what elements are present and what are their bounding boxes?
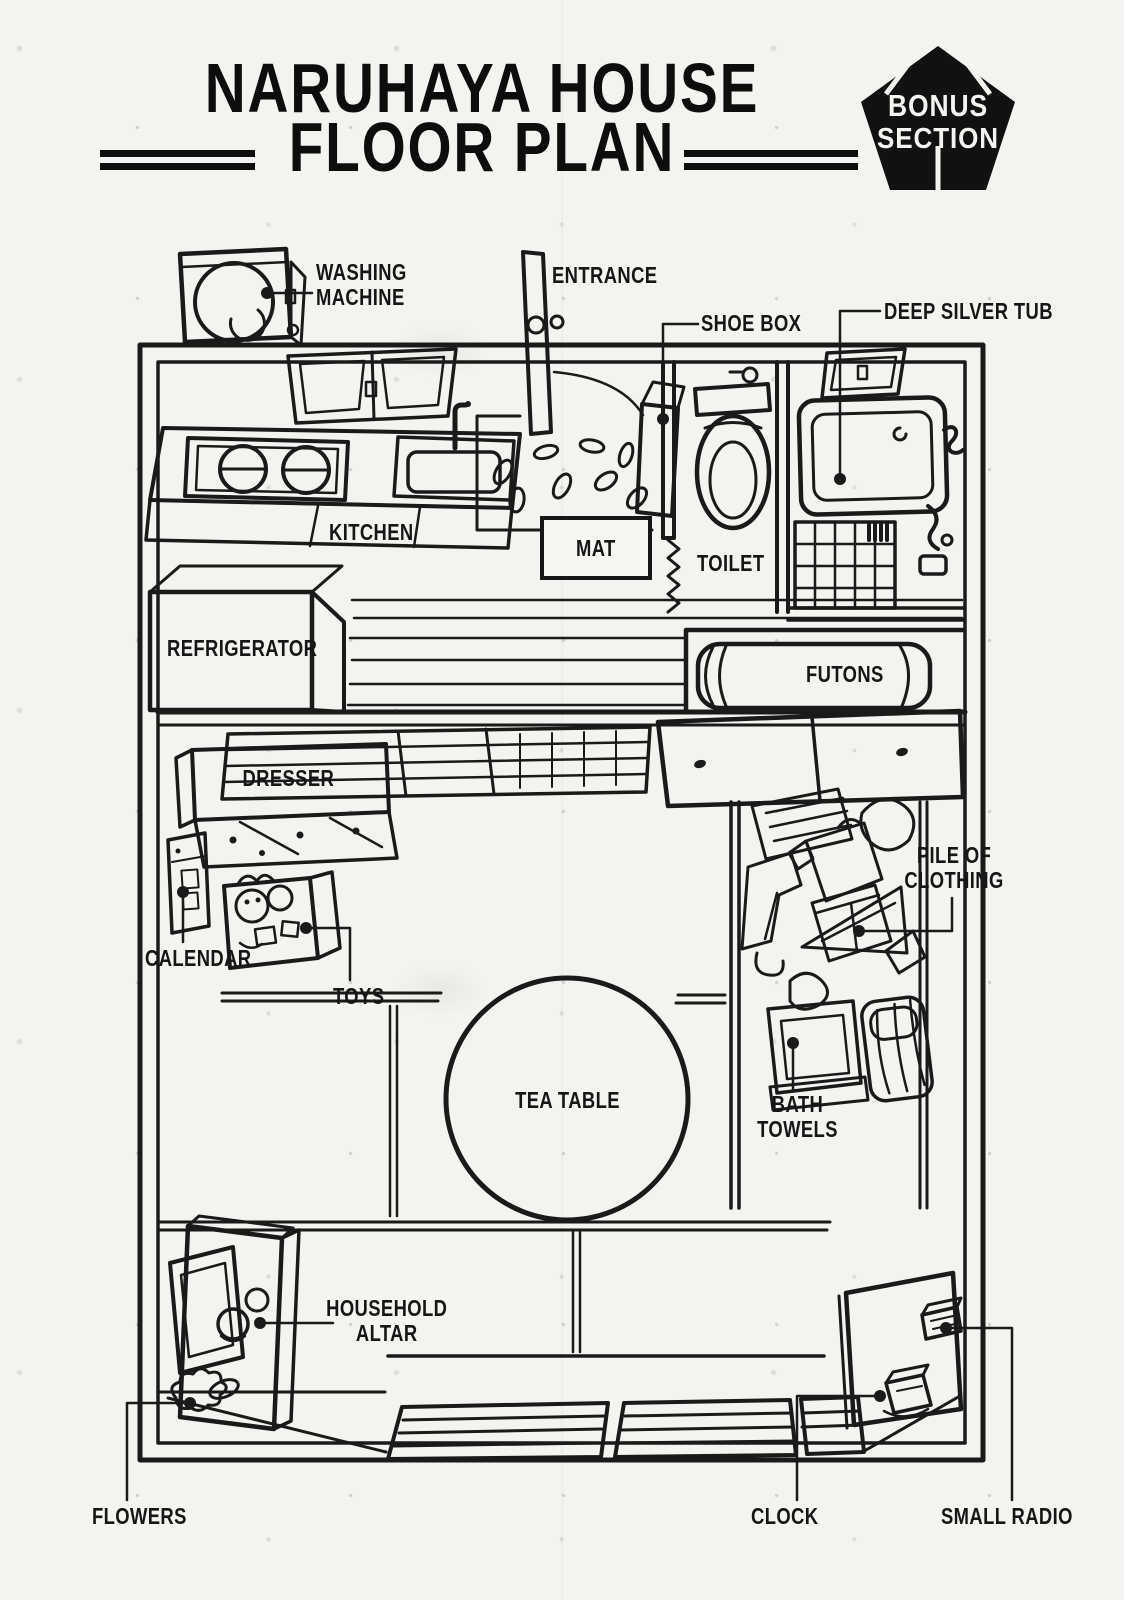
label-shoe-box: SHOE BOX (701, 311, 826, 336)
toilet-drawing (695, 368, 770, 528)
shower-fixture (920, 506, 952, 574)
kitchen-window (288, 349, 456, 423)
label-toilet: TOILET (697, 551, 781, 576)
page: NARUHAYA HOUSE FLOOR PLAN BONUS SECTION (0, 0, 1124, 1600)
label-calendar: CALENDAR (145, 946, 278, 971)
label-washing-machine: WASHING MACHINE (316, 260, 429, 310)
corridor-floor (348, 600, 962, 705)
label-kitchen: KITCHEN (329, 520, 435, 545)
label-bath-towels: BATH TOWELS (717, 1092, 877, 1142)
label-dresser: DRESSER (190, 766, 386, 791)
tatami-seams (160, 993, 960, 1452)
label-tea-table: TEA TABLE (467, 1088, 667, 1113)
floor-plan-drawing (0, 0, 1124, 1600)
bathroom-window (822, 349, 905, 398)
label-pile-of-clothing: PILE OF CLOTHING (874, 843, 1034, 893)
bath-floor-tiles (795, 522, 895, 608)
label-flowers: FLOWERS (92, 1504, 211, 1529)
clothing-pile-drawing (742, 789, 925, 1009)
towel-basket (860, 996, 934, 1103)
label-household-altar: HOUSEHOLD ALTAR (307, 1296, 467, 1346)
label-clock: CLOCK (751, 1504, 835, 1529)
calendar-drawing (168, 833, 209, 933)
washing-machine-drawing (180, 249, 305, 345)
clock-drawing (884, 1365, 931, 1417)
label-futons: FUTONS (806, 662, 903, 687)
label-deep-silver-tub: DEEP SILVER TUB (884, 299, 1095, 324)
shoe-box-drawing (637, 382, 684, 516)
label-toys: TOYS (333, 984, 397, 1009)
label-small-radio: SMALL RADIO (941, 1504, 1106, 1529)
label-entrance: ENTRANCE (552, 263, 684, 288)
veranda-windows (388, 1397, 864, 1459)
label-mat: MAT (540, 516, 652, 580)
bathtub (799, 397, 963, 515)
stove (185, 438, 348, 500)
label-refrigerator: REFRIGERATOR (167, 636, 355, 661)
